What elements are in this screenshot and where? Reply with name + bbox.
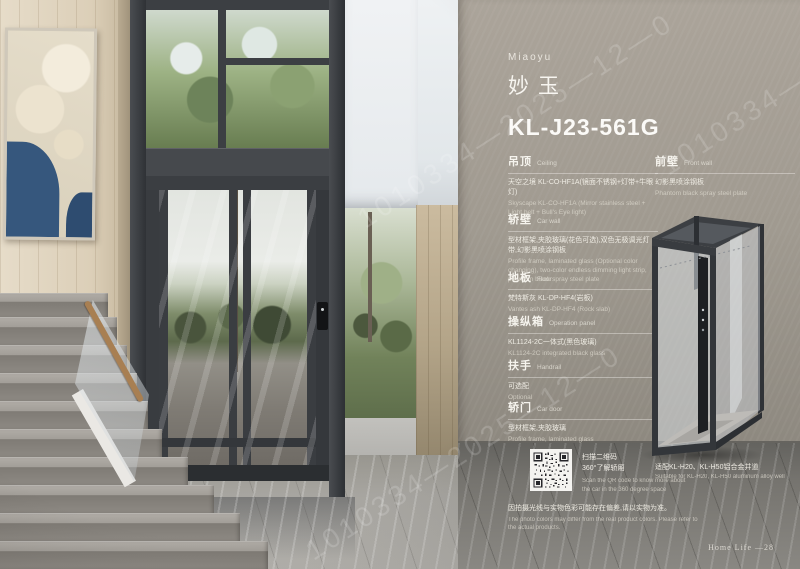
spec-section-floor: 地板Floor 梵特斯灰 KL-DP-HF4(岩板) Vantes ash KL… — [508, 268, 658, 314]
qr-caption-en: Scan the QR code to know more about the … — [582, 477, 692, 494]
spec-section-handrail: 扶手Handrail 可选配 Optional — [508, 356, 658, 402]
glass-mullion-horizontal — [226, 58, 329, 65]
disclaimer-en: The photo colors may differ from the rea… — [508, 516, 698, 533]
spec-title-cn: 操纵箱 — [508, 316, 544, 328]
qr-code-svg — [532, 451, 570, 489]
catalog-page: Miaoyu 妙玉 KL-J23-561G 吊顶Ceiling 天空之境 KL-… — [0, 0, 800, 569]
brand-name-cn: 妙玉 — [508, 70, 568, 100]
spec-section-front-wall: 前壁Front wall 幻影黑喷涂钢板 Phantom black spray… — [655, 152, 795, 198]
divider — [508, 173, 658, 174]
spec-title-cn: 地板 — [508, 272, 532, 284]
spec-body-cn: 梵特斯灰 KL-DP-HF4(岩板) — [508, 294, 658, 304]
spec-title-en: Car door — [537, 406, 562, 413]
spec-title-cn: 轿门 — [508, 402, 532, 414]
divider — [508, 333, 658, 334]
tree-trunk — [233, 190, 238, 372]
spec-body-cn: 型材框架,夹胶玻璃(花色可选),双色无极调光灯带,幻影黑喷涂钢板 — [508, 236, 658, 256]
landing-call-panel — [317, 302, 328, 330]
spec-title-en: Front wall — [684, 160, 712, 167]
spec-panel: Miaoyu 妙玉 KL-J23-561G 吊顶Ceiling 天空之境 KL-… — [458, 0, 800, 569]
spec-title-en: Operation panel — [549, 320, 595, 327]
spec-section-operation-panel: 操纵箱Operation panel KL1124-2C一体式(黑色玻璃) KL… — [508, 312, 658, 358]
model-number: KL-J23-561G — [508, 114, 660, 141]
shaft-upper-glass — [146, 10, 329, 148]
qr-code-icon — [530, 449, 572, 491]
door-stile — [307, 190, 316, 465]
cabin-render-svg — [638, 198, 770, 460]
spec-title-cn: 轿壁 — [508, 214, 532, 226]
car-door-glass — [159, 190, 316, 465]
spec-body-cn: 幻影黑喷涂钢板 — [655, 178, 795, 188]
product-photo — [0, 0, 458, 569]
shaft-top-beam — [130, 0, 345, 10]
divider — [508, 377, 658, 378]
divider — [655, 173, 795, 174]
spec-title-en: Floor — [537, 276, 552, 283]
divider — [508, 289, 658, 290]
wall-artwork — [3, 28, 97, 241]
shaft-transom — [130, 148, 345, 177]
spec-title-cn: 吊顶 — [508, 156, 532, 168]
qr-block: 扫描二维码 360°了解轿厢 Scan the QR code to know … — [530, 449, 572, 491]
stair-step — [0, 541, 268, 569]
door-stile — [229, 190, 237, 465]
brand-name-en: Miaoyu — [508, 52, 552, 63]
photo-walkway — [345, 0, 418, 462]
qr-caption-line1: 扫描二维码 — [582, 452, 702, 463]
spec-body-cn: KL1124-2C一体式(黑色玻璃) — [508, 338, 658, 348]
stair-step — [0, 485, 214, 513]
spec-title-en: Car wall — [537, 218, 560, 225]
car-header — [146, 176, 329, 190]
photo-elevator — [130, 0, 345, 497]
shaft-post-right — [329, 0, 345, 497]
cabin-render — [638, 198, 770, 460]
spec-body-en: Phantom black spray steel plate — [655, 189, 795, 198]
spec-body-cn: 可选配 — [508, 382, 658, 392]
door-stile — [159, 190, 168, 465]
page-footer: Home Life —28 — [708, 543, 774, 552]
photo-right-wall — [416, 205, 458, 460]
door-bottom-rail — [159, 438, 316, 447]
stair-step — [0, 457, 188, 485]
spec-body-cn: 天空之境 KL-CO-HF1A(镜面不锈钢+灯带+牛眼灯) — [508, 178, 658, 198]
disclaimer-cn: 因拍摄光线与实物色彩可能存在偏差,请以实物为准。 — [508, 503, 733, 513]
tree-trunk — [368, 212, 372, 342]
spec-title-en: Ceiling — [537, 160, 557, 167]
stair-step — [0, 513, 240, 541]
spec-title-cn: 扶手 — [508, 360, 532, 372]
spec-body-en: Profile frame, laminated glass — [508, 435, 658, 444]
walkway-garden — [345, 208, 418, 422]
spec-body-cn: 型材框架,夹胶玻璃 — [508, 424, 658, 434]
spec-section-car-door: 轿门Car door 型材框架,夹胶玻璃 Profile frame, lami… — [508, 398, 658, 444]
spec-title-en: Handrail — [537, 364, 561, 371]
disclaimer: 因拍摄光线与实物色彩可能存在偏差,请以实物为准。 The photo color… — [508, 503, 733, 533]
elevator-car — [146, 176, 329, 481]
spec-title-cn: 前壁 — [655, 156, 679, 168]
divider — [508, 231, 658, 232]
divider — [508, 419, 658, 420]
walkway-ceiling — [345, 0, 418, 208]
door-stile — [243, 190, 251, 465]
glass-mullion-vertical — [218, 10, 226, 148]
qr-caption-line2: 360°了解轿厢 — [582, 463, 702, 474]
spec-section-ceiling: 吊顶Ceiling 天空之境 KL-CO-HF1A(镜面不锈钢+灯带+牛眼灯) … — [508, 152, 658, 217]
qr-caption: 扫描二维码 360°了解轿厢 Scan the QR code to know … — [582, 452, 702, 494]
